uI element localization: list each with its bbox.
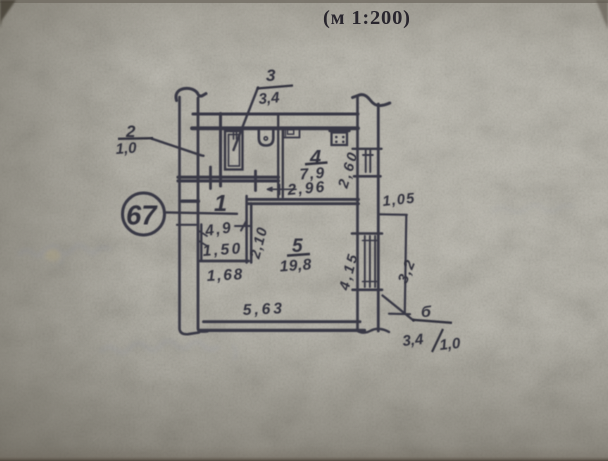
svg-text:1,0: 1,0 <box>439 335 462 354</box>
svg-text:б: б <box>421 304 432 321</box>
svg-text:1,50: 1,50 <box>202 240 243 260</box>
svg-text:(м 1:200): (м 1:200) <box>323 7 411 29</box>
svg-text:1: 1 <box>214 190 227 216</box>
svg-text:1,0: 1,0 <box>115 140 138 158</box>
svg-text:67: 67 <box>126 200 158 231</box>
svg-text:1,68: 1,68 <box>206 266 244 285</box>
svg-text:5,63: 5,63 <box>242 300 285 319</box>
svg-text:3,4: 3,4 <box>402 331 425 350</box>
svg-text:19,8: 19,8 <box>279 256 312 275</box>
svg-text:3,4: 3,4 <box>258 89 281 108</box>
svg-text:2,96: 2,96 <box>286 179 327 199</box>
svg-text:3: 3 <box>266 66 276 85</box>
